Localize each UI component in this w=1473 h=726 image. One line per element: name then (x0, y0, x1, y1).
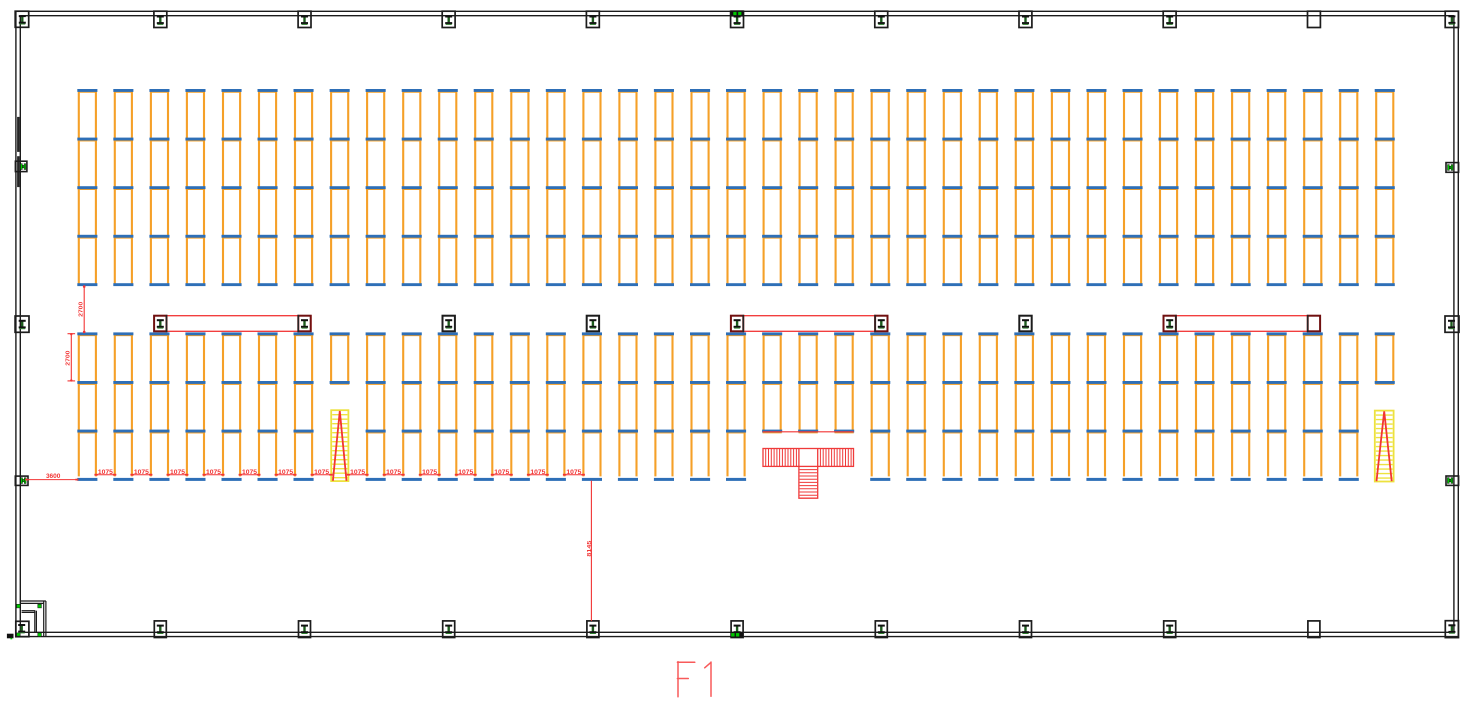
svg-text:2700: 2700 (65, 351, 71, 366)
svg-text:3600: 3600 (46, 473, 61, 480)
svg-text:1075: 1075 (350, 469, 365, 476)
svg-text:1075: 1075 (278, 469, 293, 476)
svg-text:1075: 1075 (566, 469, 581, 476)
svg-text:2700: 2700 (78, 302, 84, 317)
svg-text:1075: 1075 (242, 469, 257, 476)
svg-text:1075: 1075 (98, 469, 113, 476)
svg-text:1075: 1075 (458, 469, 473, 476)
svg-text:1075: 1075 (422, 469, 437, 476)
svg-text:1075: 1075 (314, 469, 329, 476)
svg-text:1075: 1075 (206, 469, 221, 476)
svg-text:1075: 1075 (170, 469, 185, 476)
svg-text:1075: 1075 (494, 469, 509, 476)
svg-text:1075: 1075 (386, 469, 401, 476)
svg-text:1075: 1075 (134, 469, 149, 476)
svg-text:8145: 8145 (587, 541, 593, 557)
svg-text:1075: 1075 (530, 469, 545, 476)
